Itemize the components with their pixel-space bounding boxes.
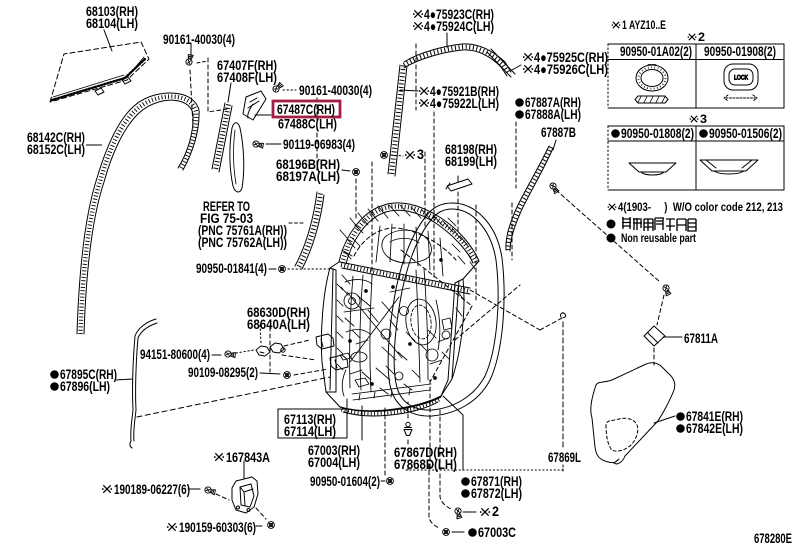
svg-text:67487C(RH): 67487C(RH) xyxy=(277,102,335,117)
svg-text:90119-06983(4): 90119-06983(4) xyxy=(283,137,355,152)
svg-text:Non reusable part: Non reusable part xyxy=(621,233,696,245)
svg-text:94151-80600(4): 94151-80600(4) xyxy=(140,347,210,362)
svg-text:678280E: 678280E xyxy=(754,531,792,546)
svg-text:68199(LH): 68199(LH) xyxy=(445,154,497,169)
svg-text:(PNC 75762A(LH)): (PNC 75762A(LH)) xyxy=(198,235,287,250)
svg-text:90950-01908(2): 90950-01908(2) xyxy=(704,44,776,59)
svg-text:90950-01808(2): 90950-01808(2) xyxy=(621,126,694,141)
svg-text:LOCK: LOCK xyxy=(734,76,748,82)
svg-text:3: 3 xyxy=(700,114,707,126)
svg-text:67896(LH): 67896(LH) xyxy=(60,379,110,394)
svg-text:67811A: 67811A xyxy=(684,331,718,346)
svg-text:90161-40030(4): 90161-40030(4) xyxy=(163,32,235,47)
svg-text:68152C(LH): 68152C(LH) xyxy=(27,142,85,157)
svg-text:67842E(LH): 67842E(LH) xyxy=(686,421,743,436)
svg-text:67868D(LH): 67868D(LH) xyxy=(394,457,457,472)
svg-text:68640A(LH): 68640A(LH) xyxy=(247,317,310,332)
svg-text:68104(LH): 68104(LH) xyxy=(86,16,138,31)
svg-text:67488C(LH): 67488C(LH) xyxy=(278,117,337,132)
svg-text:4(1903- ) W/O color code: 4(1903- ) W/O color code 212, 213 xyxy=(618,202,783,214)
svg-text:90109-08295(2): 90109-08295(2) xyxy=(188,365,258,380)
svg-text:167843A: 167843A xyxy=(226,450,270,465)
svg-text:4●75922L(LH): 4●75922L(LH) xyxy=(430,96,499,111)
svg-text:4●75926C(LH): 4●75926C(LH) xyxy=(534,62,608,77)
svg-text:68197A(LH): 68197A(LH) xyxy=(276,169,340,184)
svg-text:3: 3 xyxy=(417,147,424,162)
svg-text:90950-01506(2): 90950-01506(2) xyxy=(709,126,782,141)
svg-text:2: 2 xyxy=(698,32,705,44)
svg-text:1 AYZ10..E: 1 AYZ10..E xyxy=(622,20,666,32)
svg-text:67408F(LH): 67408F(LH) xyxy=(217,70,277,85)
svg-text:90161-40030(4): 90161-40030(4) xyxy=(299,83,372,98)
svg-text:67869L: 67869L xyxy=(548,450,581,465)
svg-text:67003C: 67003C xyxy=(478,525,516,540)
svg-text:67004(LH): 67004(LH) xyxy=(308,455,360,470)
svg-text:190159-60303(6): 190159-60303(6) xyxy=(179,520,256,535)
svg-text:67887B: 67887B xyxy=(541,125,576,140)
svg-text:2: 2 xyxy=(492,504,499,519)
svg-text:67872(LH): 67872(LH) xyxy=(471,486,522,501)
svg-text:4●75924C(LH): 4●75924C(LH) xyxy=(424,19,494,34)
svg-text:190189-06227(6): 190189-06227(6) xyxy=(114,482,190,497)
svg-text:67888A(LH): 67888A(LH) xyxy=(525,107,581,122)
svg-text:90950-01A02(2): 90950-01A02(2) xyxy=(620,44,692,59)
svg-text:90950-01604(2): 90950-01604(2) xyxy=(310,474,380,489)
svg-text:90950-01841(4): 90950-01841(4) xyxy=(196,261,267,276)
svg-text:67114(LH): 67114(LH) xyxy=(284,424,336,439)
